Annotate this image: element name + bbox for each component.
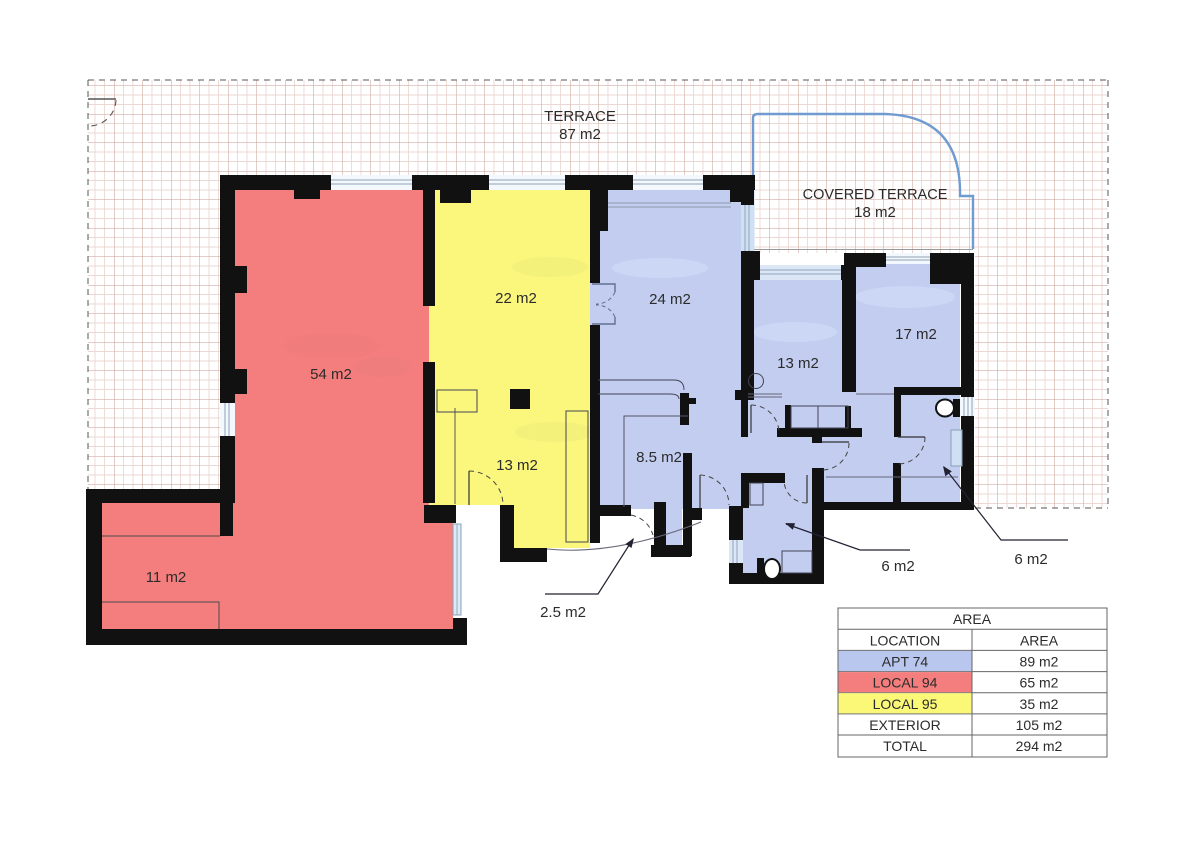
svg-text:LOCATION: LOCATION — [870, 633, 941, 649]
svg-text:6 m2: 6 m2 — [881, 558, 914, 575]
svg-text:TERRACE: TERRACE — [544, 108, 616, 125]
svg-text:13 m2: 13 m2 — [777, 355, 819, 372]
svg-text:54 m2: 54 m2 — [310, 366, 352, 383]
svg-text:11 m2: 11 m2 — [146, 569, 187, 586]
svg-text:105 m2: 105 m2 — [1016, 717, 1063, 733]
svg-text:TOTAL: TOTAL — [883, 738, 927, 754]
svg-text:8.5 m2: 8.5 m2 — [636, 449, 682, 466]
svg-text:294 m2: 294 m2 — [1016, 738, 1063, 754]
svg-text:AREA: AREA — [1020, 633, 1059, 649]
svg-text:APT 74: APT 74 — [882, 654, 929, 670]
svg-text:EXTERIOR: EXTERIOR — [869, 717, 941, 733]
svg-text:22 m2: 22 m2 — [495, 290, 537, 307]
svg-text:87 m2: 87 m2 — [559, 126, 601, 143]
svg-text:2.5 m2: 2.5 m2 — [540, 604, 586, 621]
svg-text:LOCAL 94: LOCAL 94 — [873, 675, 938, 691]
svg-text:17 m2: 17 m2 — [895, 326, 937, 343]
svg-text:LOCAL 95: LOCAL 95 — [873, 696, 938, 712]
svg-text:13 m2: 13 m2 — [496, 457, 538, 474]
svg-text:18 m2: 18 m2 — [854, 204, 896, 221]
svg-text:AREA: AREA — [953, 611, 992, 627]
svg-text:24 m2: 24 m2 — [649, 291, 691, 308]
svg-text:89 m2: 89 m2 — [1020, 654, 1059, 670]
svg-text:65 m2: 65 m2 — [1020, 675, 1059, 691]
svg-text:COVERED TERRACE: COVERED TERRACE — [803, 187, 948, 203]
svg-text:6 m2: 6 m2 — [1014, 551, 1047, 568]
svg-text:35 m2: 35 m2 — [1020, 696, 1059, 712]
